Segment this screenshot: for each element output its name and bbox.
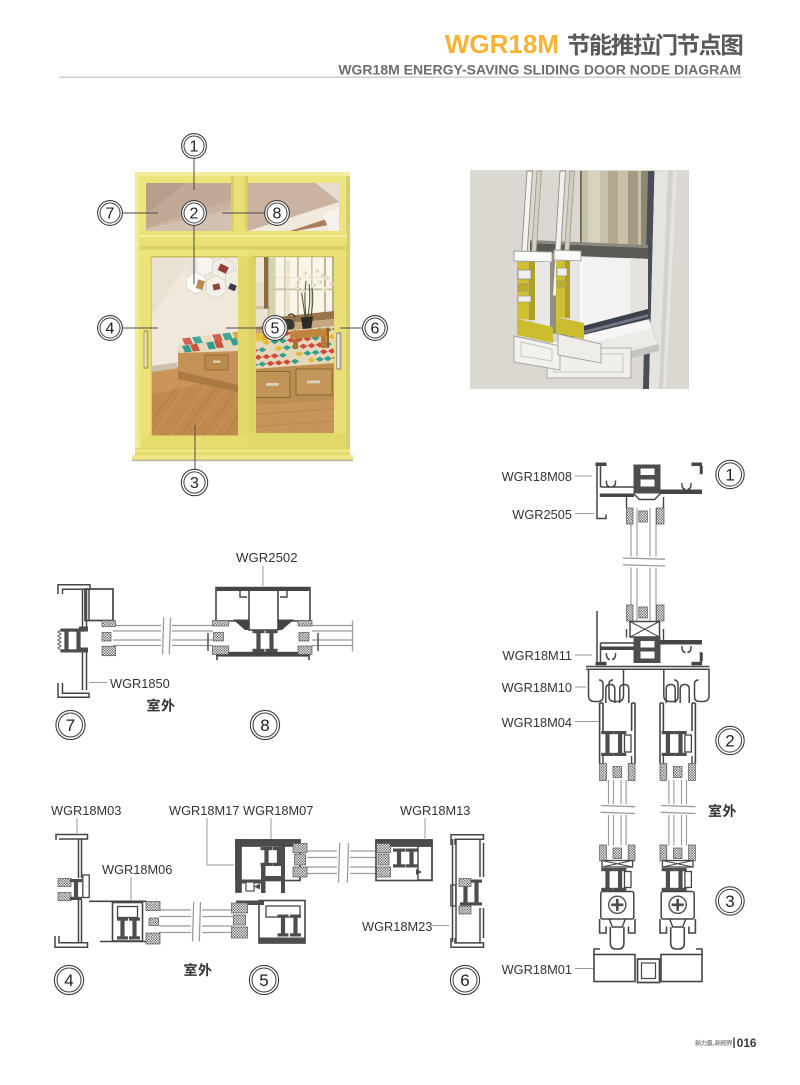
svg-text:WGR18M04: WGR18M04 [502,715,572,730]
svg-text:8: 8 [273,206,282,223]
svg-text:WGR18M23: WGR18M23 [362,919,432,934]
svg-text:WGR1850: WGR1850 [110,676,170,691]
svg-text:WGR2505: WGR2505 [512,507,572,522]
svg-text:1: 1 [725,465,734,484]
svg-text:WGR18M01: WGR18M01 [502,962,572,977]
svg-text:WGR18M13: WGR18M13 [400,803,470,818]
svg-text:WGR18M03: WGR18M03 [51,803,121,818]
svg-text:WGR18M06: WGR18M06 [102,862,172,877]
svg-text:5: 5 [259,971,268,990]
svg-text:016: 016 [737,1036,757,1050]
svg-text:3: 3 [190,475,199,492]
svg-text:WGR18M17: WGR18M17 [169,803,239,818]
svg-text:1: 1 [190,139,199,156]
svg-text:8: 8 [260,716,269,735]
svg-text:WGR18M07: WGR18M07 [243,803,313,818]
svg-text:WGR18M ENERGY-SAVING SLIDING D: WGR18M ENERGY-SAVING SLIDING DOOR NODE D… [338,62,741,78]
svg-text:6: 6 [460,971,469,990]
svg-text:5: 5 [271,321,280,338]
svg-text:7: 7 [106,206,115,223]
svg-text:WGR2502: WGR2502 [236,550,298,565]
svg-text:4: 4 [64,971,73,990]
svg-text:7: 7 [66,716,75,735]
svg-text:4: 4 [106,321,115,338]
svg-text:WGR18M08: WGR18M08 [502,469,572,484]
svg-text:WGR18M: WGR18M [445,29,559,59]
svg-text:2: 2 [190,206,199,223]
svg-text:WGR18M10: WGR18M10 [502,680,572,695]
svg-text:WGR18M11: WGR18M11 [503,648,572,663]
svg-text:2: 2 [725,731,734,750]
svg-text:6: 6 [371,321,380,338]
svg-text:3: 3 [725,892,734,911]
